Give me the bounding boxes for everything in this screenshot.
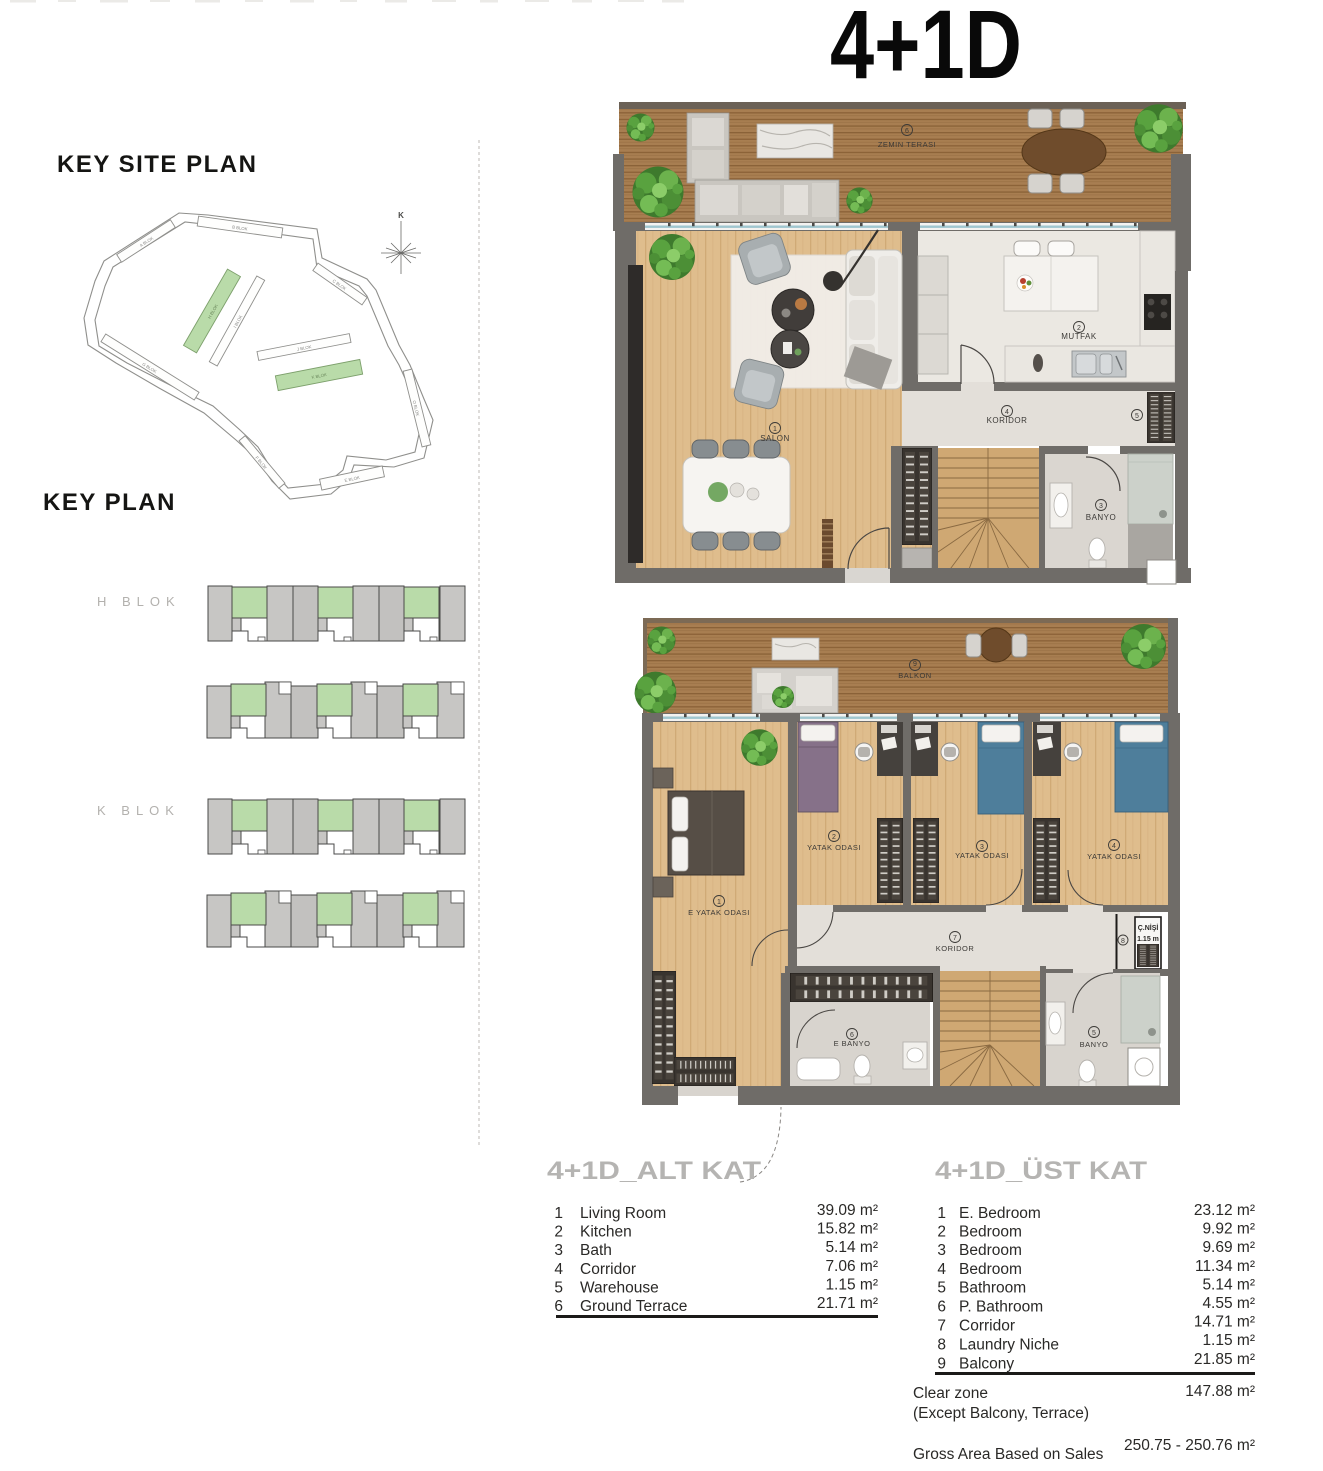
svg-text:6: 6 [937,1299,946,1316]
svg-text:Bathroom: Bathroom [959,1279,1026,1296]
svg-text:2: 2 [832,834,836,841]
svg-text:Ground Terrace: Ground Terrace [580,1298,687,1315]
svg-text:3: 3 [937,1242,946,1259]
svg-text:8: 8 [937,1337,946,1354]
svg-text:Bedroom: Bedroom [959,1242,1022,1259]
svg-text:2: 2 [554,1224,563,1241]
svg-text:250.75 - 250.76 m²: 250.75 - 250.76 m² [1124,1437,1255,1454]
svg-text:Clear zone: Clear zone [913,1385,988,1402]
svg-text:6: 6 [554,1298,563,1315]
svg-text:ZEMIN TERASI: ZEMIN TERASI [878,140,936,149]
svg-text:14.71 m²: 14.71 m² [1194,1314,1255,1331]
svg-text:4: 4 [1112,843,1116,850]
svg-text:23.12 m²: 23.12 m² [1194,1202,1255,1219]
svg-text:1: 1 [773,426,777,433]
svg-text:5: 5 [1092,1030,1096,1037]
svg-text:2: 2 [937,1224,946,1241]
svg-text:KEY SITE PLAN: KEY SITE PLAN [57,151,257,178]
svg-text:BANYO: BANYO [1080,1040,1109,1049]
svg-text:1: 1 [717,899,721,906]
svg-text:39.09 m²: 39.09 m² [817,1202,878,1219]
svg-text:147.88 m²: 147.88 m² [1185,1383,1255,1400]
svg-text:4: 4 [937,1261,946,1278]
svg-text:7.06 m²: 7.06 m² [825,1258,878,1275]
svg-text:7: 7 [953,935,957,942]
svg-text:E. Bedroom: E. Bedroom [959,1205,1041,1222]
svg-text:H BLOK: H BLOK [97,594,181,609]
svg-text:4: 4 [1005,409,1009,416]
svg-text:4+1D_ÜST KAT: 4+1D_ÜST KAT [935,1156,1147,1185]
svg-text:KORIDOR: KORIDOR [987,416,1028,425]
svg-text:MUTFAK: MUTFAK [1061,332,1097,341]
svg-text:Balcony: Balcony [959,1356,1014,1373]
svg-text:K BLOK: K BLOK [97,803,180,818]
svg-text:4: 4 [554,1261,563,1278]
svg-text:21.85 m²: 21.85 m² [1194,1351,1255,1368]
svg-text:5.14 m²: 5.14 m² [825,1239,878,1256]
svg-text:Living Room: Living Room [580,1205,666,1222]
svg-text:9: 9 [937,1356,946,1373]
svg-text:Kitchen: Kitchen [580,1224,632,1241]
svg-text:YATAK ODASI: YATAK ODASI [807,843,861,852]
svg-text:5: 5 [937,1279,946,1296]
svg-text:SALON: SALON [760,434,790,443]
svg-text:BALKON: BALKON [898,671,931,680]
svg-text:9.92 m²: 9.92 m² [1202,1221,1255,1238]
svg-text:Ç.NİŞİ: Ç.NİŞİ [1138,924,1159,932]
svg-text:2: 2 [1077,325,1081,332]
svg-text:7: 7 [937,1318,946,1335]
svg-text:KEY PLAN: KEY PLAN [43,489,176,516]
svg-text:11.34 m²: 11.34 m² [1195,1258,1255,1275]
svg-text:Warehouse: Warehouse [580,1279,659,1296]
svg-text:Bath: Bath [580,1242,612,1259]
svg-text:3: 3 [980,844,984,851]
svg-text:4+1D: 4+1D [830,0,1022,99]
svg-text:Corridor: Corridor [580,1261,636,1278]
svg-text:4+1D_ALT KAT: 4+1D_ALT KAT [547,1157,761,1185]
svg-text:9: 9 [913,661,917,668]
svg-text:Bedroom: Bedroom [959,1261,1022,1278]
svg-text:KORIDOR: KORIDOR [936,944,975,953]
svg-text:6: 6 [850,1032,854,1039]
svg-text:15.82 m²: 15.82 m² [817,1221,878,1238]
svg-text:E YATAK ODASI: E YATAK ODASI [688,908,750,917]
svg-text:3: 3 [1099,503,1103,510]
svg-text:5.14 m²: 5.14 m² [1202,1276,1255,1293]
svg-text:BANYO: BANYO [1086,513,1117,522]
svg-text:Gross Area Based on Sales: Gross Area Based on Sales [913,1446,1104,1463]
svg-text:(Except Balcony, Terrace): (Except Balcony, Terrace) [913,1405,1089,1422]
svg-text:P. Bathroom: P. Bathroom [959,1299,1043,1316]
svg-text:9.69 m²: 9.69 m² [1202,1239,1255,1256]
svg-text:4.55 m²: 4.55 m² [1202,1295,1255,1312]
svg-text:3: 3 [554,1242,563,1259]
svg-text:1.15 m²: 1.15 m² [1202,1332,1255,1349]
svg-text:K: K [398,211,404,220]
svg-text:1.15 m²: 1.15 m² [825,1276,878,1293]
svg-text:YATAK ODASI: YATAK ODASI [955,851,1009,860]
svg-text:Corridor: Corridor [959,1318,1015,1335]
svg-text:E BANYO: E BANYO [834,1039,871,1048]
svg-text:1: 1 [554,1205,563,1222]
svg-text:1.15 m: 1.15 m [1137,936,1159,943]
svg-text:Bedroom: Bedroom [959,1224,1022,1241]
svg-text:Laundry Niche: Laundry Niche [959,1337,1059,1354]
svg-text:1: 1 [937,1205,946,1222]
svg-text:8: 8 [1121,938,1125,945]
svg-text:YATAK ODASI: YATAK ODASI [1087,852,1141,861]
svg-text:5: 5 [1135,413,1139,420]
svg-text:5: 5 [554,1279,563,1296]
svg-text:6: 6 [905,128,909,135]
svg-text:21.71 m²: 21.71 m² [817,1295,878,1312]
